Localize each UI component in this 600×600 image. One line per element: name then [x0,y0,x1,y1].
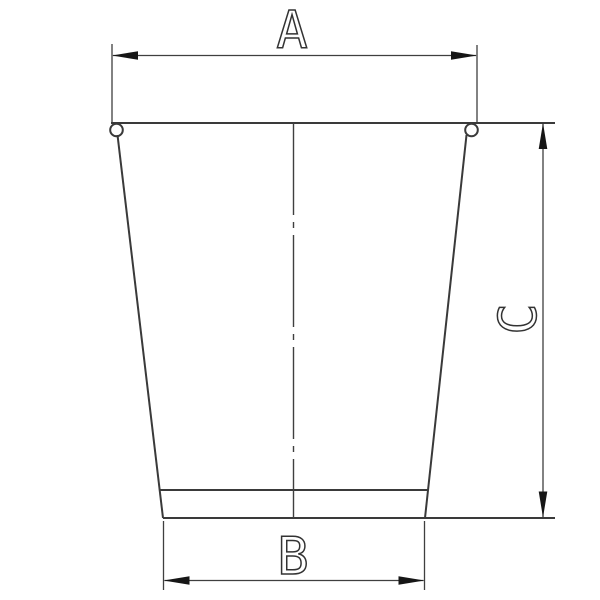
dimension-c: C [489,123,549,518]
arrowhead-up-icon [539,123,548,149]
arrowhead-down-icon [539,492,548,518]
arrowhead-right-icon [399,576,425,585]
arrowhead-left-icon [112,51,138,60]
cup-left-side-line [118,135,164,518]
drawing-canvas: A B C [0,0,600,600]
cup-right-side-line [425,135,467,518]
cup-dimension-drawing: A B C [0,0,600,600]
arrowhead-right-icon [451,51,477,60]
dimension-b-label: B [277,527,308,587]
rim-bead-right-circle [465,124,478,137]
rim-bead-left-circle [110,124,123,137]
dimension-c-label: C [489,303,549,334]
dimension-a-label: A [276,1,307,61]
arrowhead-left-icon [164,576,190,585]
dimension-b: B [164,521,425,590]
dimension-a: A [112,1,477,122]
